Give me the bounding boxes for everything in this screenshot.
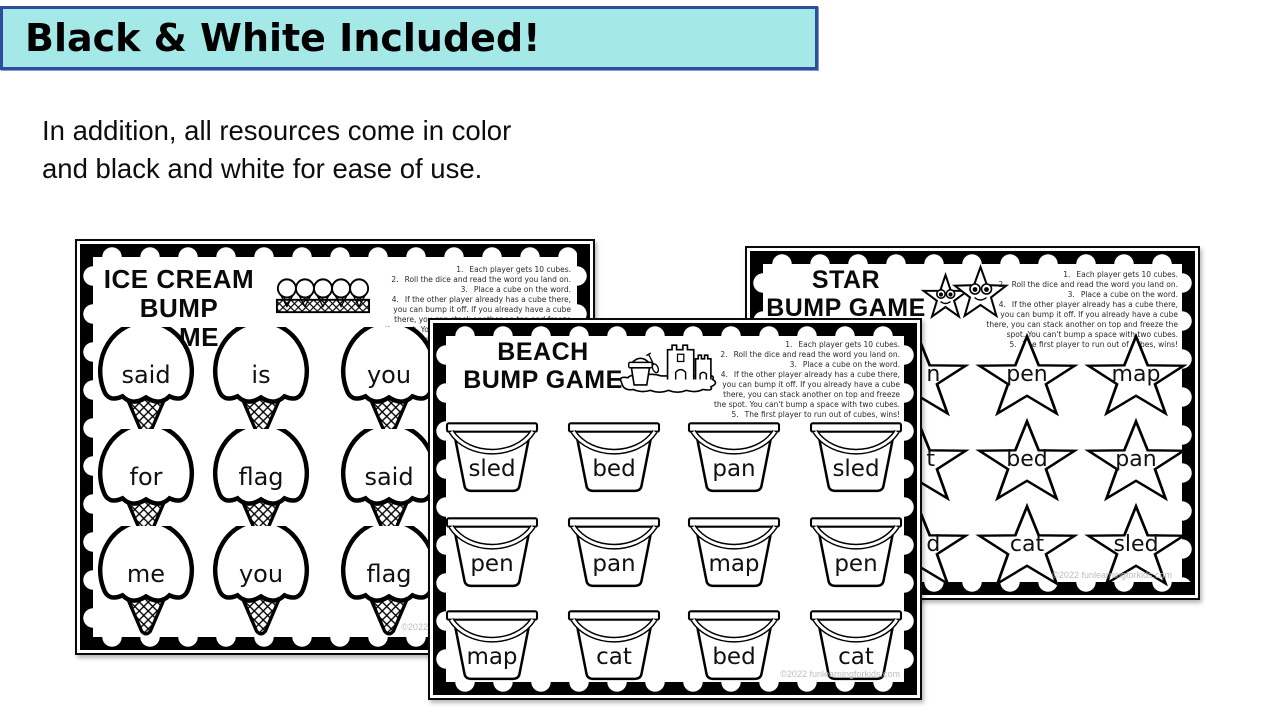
word-cell: me (90, 526, 202, 645)
word-label: pen (442, 551, 542, 577)
word-cell: map (442, 607, 542, 689)
word-cell: sled (806, 419, 906, 501)
word-label: pan (1084, 447, 1188, 472)
word-cell: pen (442, 514, 542, 596)
word-label: d (926, 532, 940, 557)
word-label: is (205, 361, 317, 389)
intro-line-2: and black and white for ease of use. (42, 150, 511, 188)
card-title-line1: STAR (763, 266, 929, 294)
instruction-item: 2.Roll the dice and read the word you la… (381, 275, 571, 285)
word-label: n (926, 362, 940, 387)
word-cell: you (205, 526, 317, 645)
watermark: ©2022 funlearningforkids.com (1052, 570, 1172, 580)
card-title: BEACH BUMP GAME (454, 338, 632, 394)
instruction-item: 4.If the other player already has a cube… (710, 370, 900, 410)
word-cell: pan (564, 514, 664, 596)
word-label: bed (564, 456, 664, 482)
instructions-list: 1.Each player gets 10 cubes. 2.Roll the … (710, 340, 900, 420)
word-label: map (684, 551, 784, 577)
word-label: map (1084, 362, 1188, 387)
word-label: pan (684, 456, 784, 482)
word-cell: pen (806, 514, 906, 596)
card-title: STAR BUMP GAME (763, 266, 929, 322)
word-label: sled (806, 456, 906, 482)
word-label: pan (564, 551, 664, 577)
instruction-item: 2.Roll the dice and read the word you la… (983, 280, 1178, 290)
word-label: me (90, 560, 202, 588)
word-label: sled (1084, 532, 1188, 557)
word-label: t (926, 447, 935, 472)
word-label: said (90, 361, 202, 389)
intro-line-1: In addition, all resources come in color (42, 112, 511, 150)
instruction-item: 3.Place a cube on the word. (381, 285, 571, 295)
instruction-item: 1.Each player gets 10 cubes. (381, 265, 571, 275)
word-label: cat (975, 532, 1079, 557)
word-label: sled (442, 456, 542, 482)
word-label: map (442, 644, 542, 670)
word-cell: pen (975, 332, 1079, 425)
ice-cream-tray-illustration (272, 277, 374, 315)
instruction-item: 3.Place a cube on the word. (983, 290, 1178, 300)
card-inner: BEACH BUMP GAME 1.Each player gets 10 cu… (446, 336, 904, 682)
card-title-line1: BEACH (454, 338, 632, 366)
card-title-line2: BUMP GAME (454, 366, 632, 394)
word-label: cat (806, 644, 906, 670)
sandcastle-beach-illustration (616, 338, 720, 394)
word-cell: cat (975, 502, 1079, 595)
word-cell: map (1084, 332, 1188, 425)
word-cell: sled (1084, 502, 1188, 595)
instruction-item: 3.Place a cube on the word. (710, 360, 900, 370)
banner: Black & White Included! (0, 6, 818, 70)
word-cell: sled (442, 419, 542, 501)
scalloped-border (763, 252, 1182, 264)
bump-game-card-beach: BEACH BUMP GAME 1.Each player gets 10 cu… (428, 318, 922, 700)
word-cell: bed (975, 417, 1079, 510)
instruction-item: 1.Each player gets 10 cubes. (983, 270, 1178, 280)
word-label: you (205, 560, 317, 588)
word-cell: bed (684, 607, 784, 689)
scalloped-border (93, 245, 577, 257)
word-label: cat (564, 644, 664, 670)
word-cell: cat (564, 607, 664, 689)
card-frame: BEACH BUMP GAME 1.Each player gets 10 cu… (433, 323, 917, 695)
word-label: for (90, 463, 202, 491)
instruction-item: 1.Each player gets 10 cubes. (710, 340, 900, 350)
word-cell: pan (684, 419, 784, 501)
word-label: pen (806, 551, 906, 577)
word-label: bed (975, 447, 1079, 472)
word-label: pen (975, 362, 1079, 387)
slide: { "banner": { "title": "Black & White In… (0, 0, 1280, 722)
word-label: bed (684, 644, 784, 670)
intro-text: In addition, all resources come in color… (42, 112, 511, 188)
scalloped-border (446, 324, 904, 336)
watermark: ©2022 funlearningforkids.com (780, 669, 900, 679)
word-cell: pan (1084, 417, 1188, 510)
word-cell: bed (564, 419, 664, 501)
instruction-item: 2.Roll the dice and read the word you la… (710, 350, 900, 360)
banner-title: Black & White Included! (25, 16, 541, 60)
card-title-line1: ICE CREAM (103, 265, 255, 294)
word-cell: map (684, 514, 784, 596)
word-label: flag (205, 463, 317, 491)
